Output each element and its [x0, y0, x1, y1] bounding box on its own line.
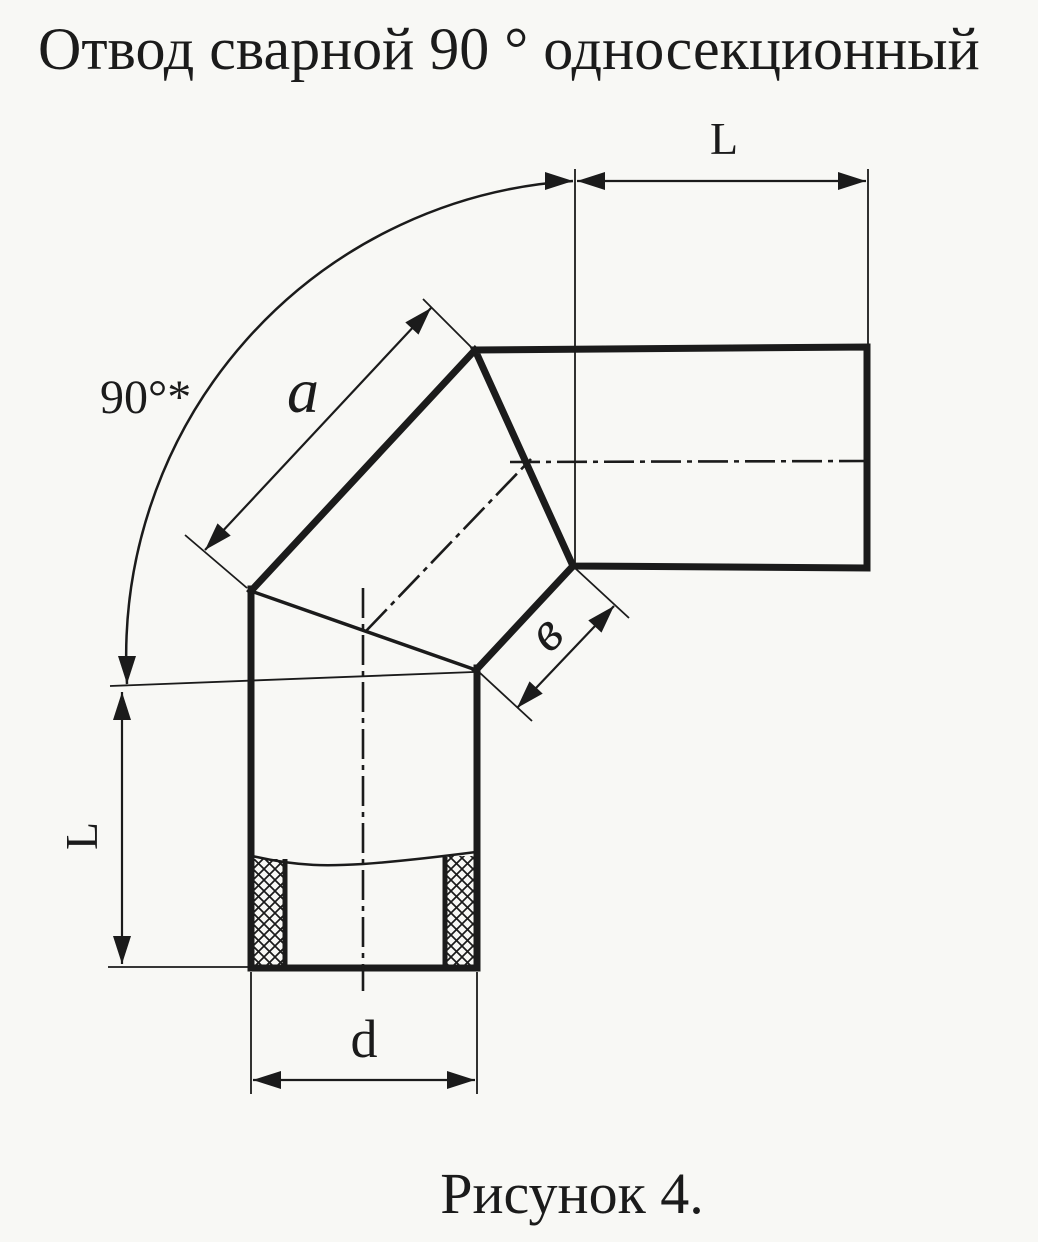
dim-L-top: L [575, 113, 868, 564]
socket-hatch-right [446, 856, 476, 966]
elbow-drawing-canvas: 90°* L a в L [0, 0, 1038, 1242]
dimension-label-L-top: L [710, 113, 738, 164]
dimension-label-d: d [351, 1009, 378, 1069]
arrowhead-L-top-right [838, 172, 866, 190]
dimension-label-a: a [287, 355, 319, 426]
arrowhead-arc-bottom [118, 656, 136, 684]
figure-caption: Рисунок 4. [322, 1160, 822, 1227]
angle-arc-group: 90°* [100, 172, 573, 684]
centerline-diagonal [366, 459, 531, 631]
centerline-horizontal [510, 461, 873, 462]
dimension-label-L-left: L [56, 822, 107, 850]
drawing-sheet: { "title": "Отвод сварной 90 ° односекци… [0, 0, 1038, 1242]
arrowhead-d-left [253, 1071, 281, 1089]
horizontal-pipe-outline [475, 347, 867, 568]
dimension-label-v: в [515, 602, 576, 663]
extension-line-L-left-top [110, 672, 474, 686]
angle-arc [126, 181, 573, 684]
angle-label: 90°* [100, 371, 191, 424]
arrowhead-d-right [447, 1071, 475, 1089]
extension-line-a-top [423, 299, 471, 347]
dim-a: a [185, 299, 471, 588]
arrowhead-L-top-left [577, 172, 605, 190]
arrowhead-L-left-top [113, 692, 131, 720]
extension-line-v-top [576, 569, 629, 618]
centerlines [363, 459, 873, 991]
arrowhead-arc-top [545, 172, 573, 190]
arrowhead-L-left-bottom [113, 936, 131, 964]
socket-hatch-left [254, 859, 283, 966]
